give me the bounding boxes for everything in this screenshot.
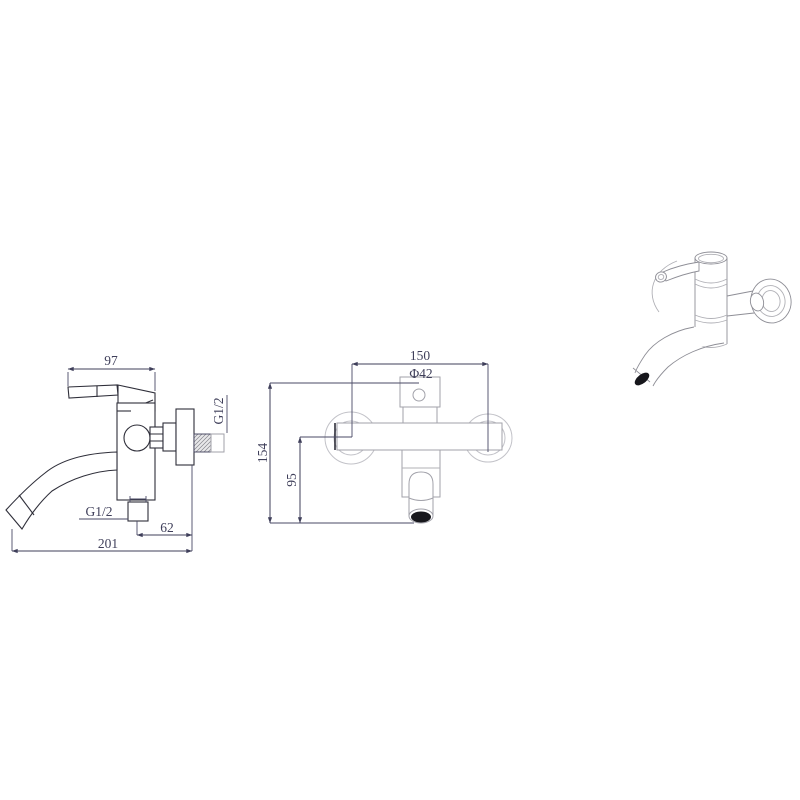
front-view: 150 Φ42 154 95 [255, 348, 512, 523]
lever-3d [652, 261, 699, 312]
dim-handle-length-label: 97 [104, 353, 118, 368]
thread-cap [211, 434, 224, 452]
bottom-outlet [128, 502, 148, 521]
technical-drawing-canvas: 97 G1/2 G1/2 62 201 [0, 0, 800, 800]
connector-collar [163, 423, 176, 451]
threaded-nipple [194, 434, 211, 452]
shower-port-bracket [400, 377, 440, 407]
dim-outlet-thread: G1/2 [79, 504, 128, 519]
dim-overall-height: 154 [255, 383, 270, 523]
spout-3d [633, 327, 724, 388]
cartridge-circle [124, 425, 150, 451]
perspective-view [633, 252, 796, 388]
dim-spout-drop: 95 [284, 437, 300, 523]
dim-outlet-thread-label: G1/2 [86, 504, 113, 519]
faucet-drawing-svg: 97 G1/2 G1/2 62 201 [0, 0, 800, 800]
bracket-neck [403, 407, 437, 423]
wall-plate [176, 409, 194, 465]
side-view: 97 G1/2 G1/2 62 201 [6, 353, 227, 551]
dim-spout-drop-label: 95 [284, 473, 299, 487]
dim-flange-diameter-label: Φ42 [409, 366, 432, 381]
dim-outlet-offset-label: 62 [160, 520, 174, 535]
dim-overall-height-label: 154 [255, 443, 270, 464]
wall-arm-3d [727, 291, 754, 316]
handle-lever [68, 385, 118, 398]
dim-wall-thread: G1/2 [211, 395, 227, 433]
body-bar [337, 423, 502, 450]
dim-center-distance-label: 150 [410, 348, 431, 363]
dim-overall-length-label: 201 [98, 536, 118, 551]
dim-wall-thread-label: G1/2 [211, 398, 226, 425]
dim-flange-diameter: Φ42 [409, 366, 432, 381]
connector-nut [150, 427, 163, 448]
aerator-tip [411, 512, 431, 523]
